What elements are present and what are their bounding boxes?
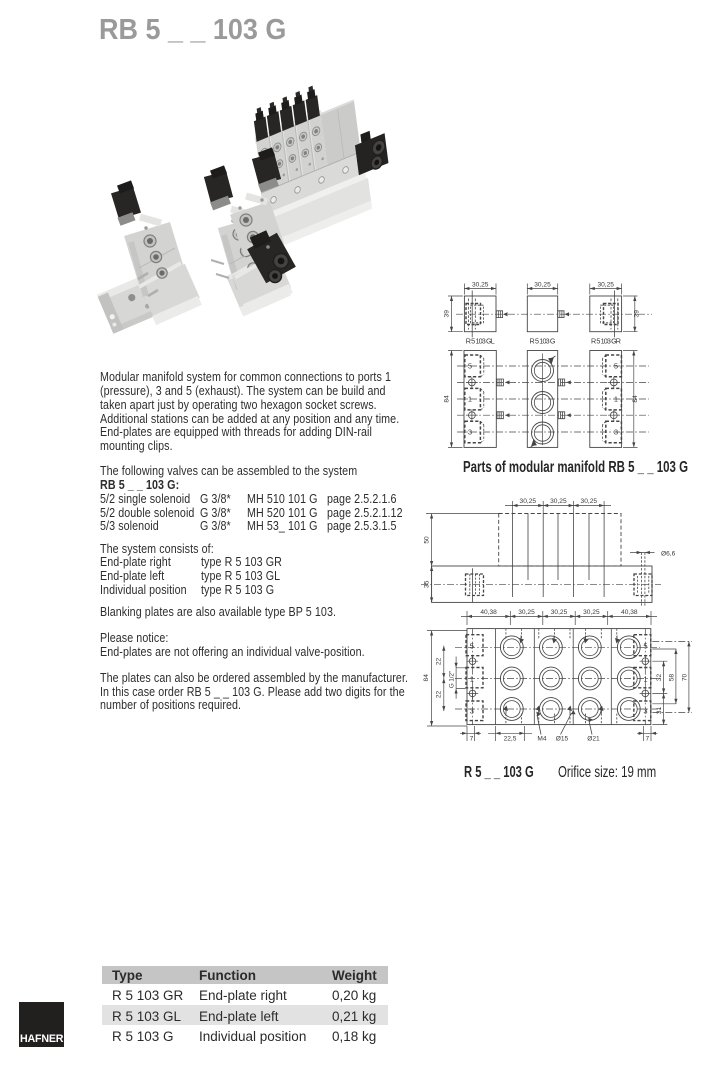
svg-text:5: 5: [470, 642, 474, 651]
svg-text:Ø6,6: Ø6,6: [661, 551, 676, 558]
svg-text:3: 3: [643, 707, 647, 716]
svg-text:M4: M4: [537, 736, 546, 743]
svg-text:31: 31: [656, 707, 663, 715]
svg-text:Ø21: Ø21: [587, 736, 600, 743]
svg-text:Ø15: Ø15: [556, 736, 569, 743]
svg-text:40,38: 40,38: [621, 609, 638, 616]
svg-text:30,25: 30,25: [520, 498, 537, 505]
svg-text:58: 58: [668, 674, 675, 682]
svg-text:35: 35: [423, 580, 430, 588]
svg-text:5: 5: [643, 642, 647, 651]
svg-text:40,38: 40,38: [480, 609, 497, 616]
svg-text:22: 22: [435, 658, 442, 666]
svg-text:1: 1: [470, 674, 474, 683]
svg-text:30,25: 30,25: [581, 498, 598, 505]
svg-text:32: 32: [656, 674, 663, 682]
svg-text:7: 7: [470, 736, 474, 743]
svg-text:50: 50: [423, 536, 430, 544]
svg-text:7: 7: [645, 736, 649, 743]
svg-text:30,25: 30,25: [551, 609, 568, 616]
svg-text:G 1/2": G 1/2": [449, 671, 456, 688]
svg-text:30,25: 30,25: [550, 498, 567, 505]
svg-text:3: 3: [470, 707, 474, 716]
svg-text:30,25: 30,25: [518, 609, 535, 616]
svg-text:84: 84: [423, 674, 430, 682]
svg-text:1: 1: [643, 674, 647, 683]
svg-text:22: 22: [435, 691, 442, 699]
svg-text:70: 70: [681, 674, 688, 682]
svg-text:22,5: 22,5: [504, 736, 517, 743]
svg-text:30,25: 30,25: [583, 609, 600, 616]
